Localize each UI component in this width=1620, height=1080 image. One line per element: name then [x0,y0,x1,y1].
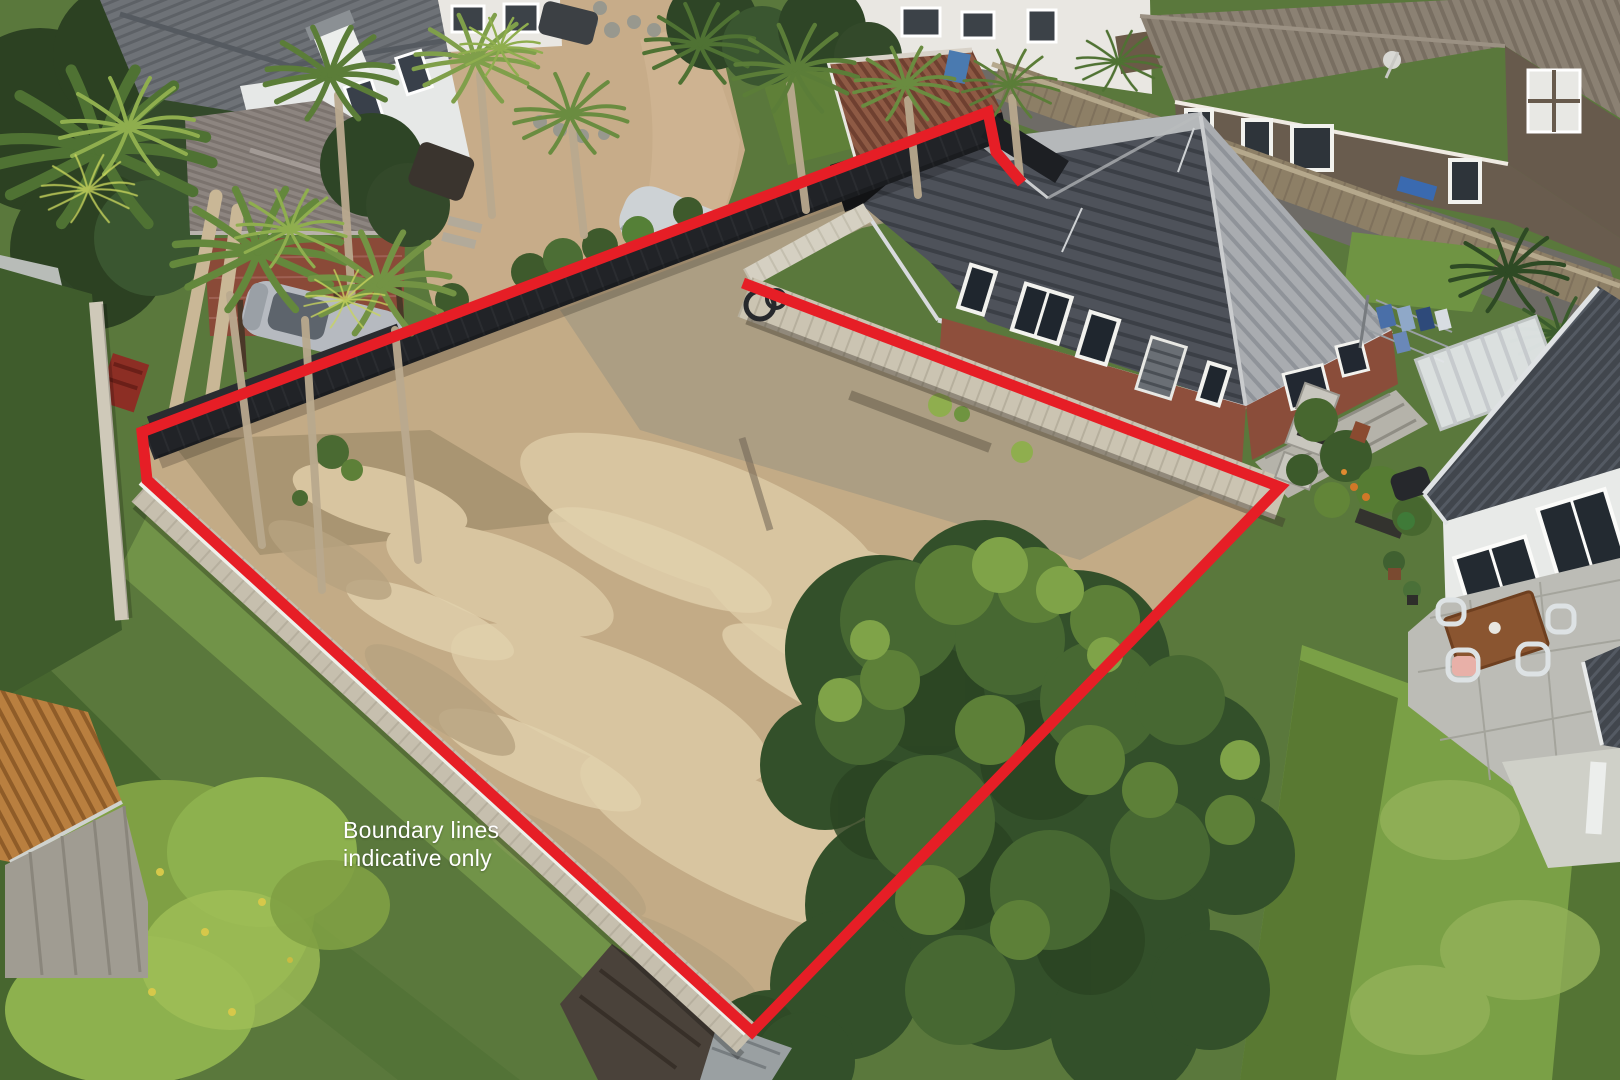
boundary-disclaimer-line1: Boundary lines [343,816,499,844]
photo-scene [0,0,1620,1080]
boundary-disclaimer-line2: indicative only [343,844,499,872]
boundary-disclaimer: Boundary lines indicative only [343,816,499,872]
aerial-property-photo: Boundary lines indicative only [0,0,1620,1080]
